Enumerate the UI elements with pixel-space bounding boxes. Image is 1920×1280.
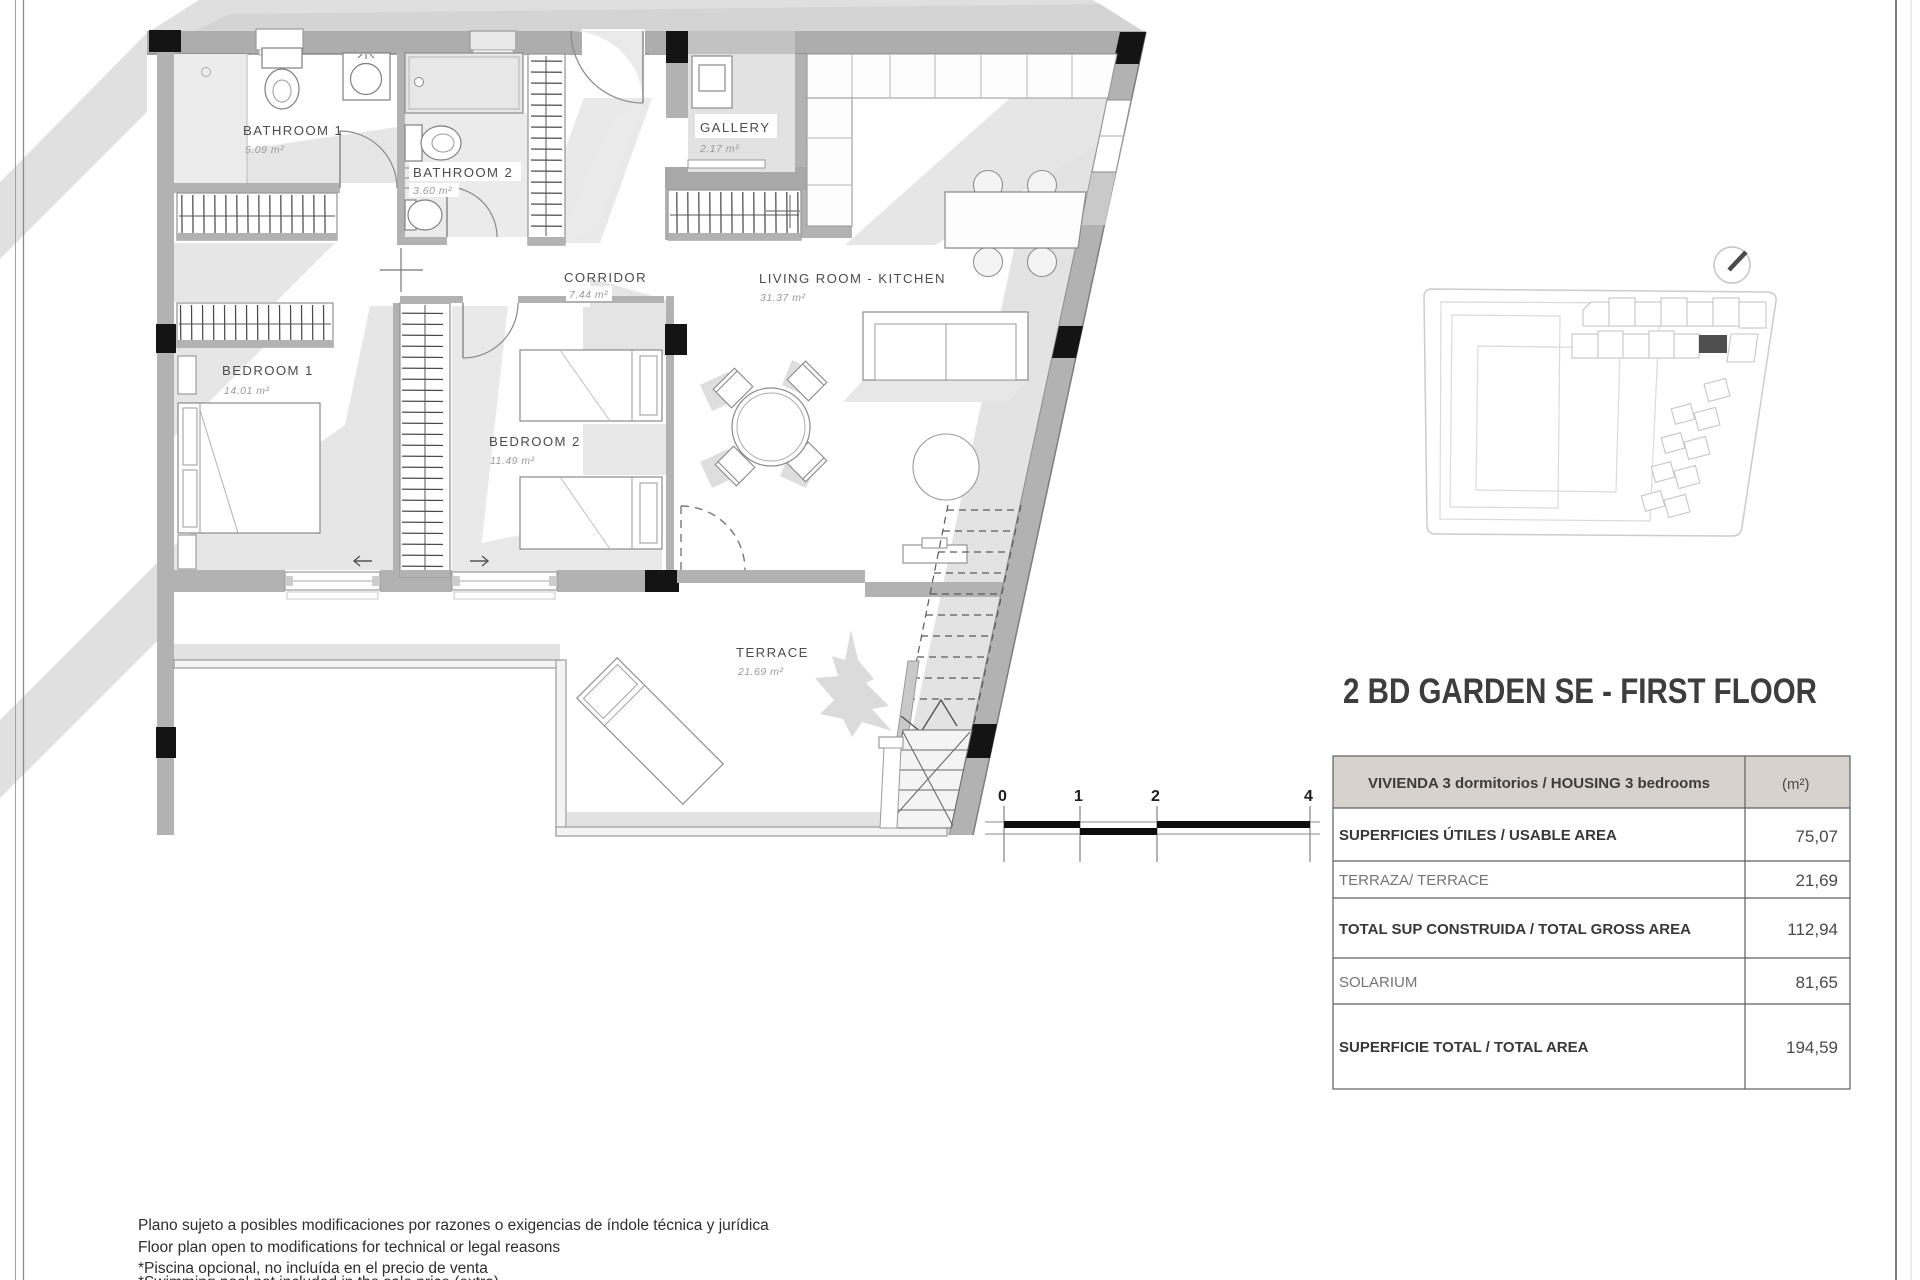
svg-text:5.09 m²: 5.09 m² [245,144,284,156]
svg-text:81,65: 81,65 [1795,973,1838,992]
svg-text:TOTAL SUP CONSTRUIDA / TOTAL G: TOTAL SUP CONSTRUIDA / TOTAL GROSS AREA [1339,921,1691,938]
svg-text:3.60 m²: 3.60 m² [413,185,452,197]
svg-text:CORRIDOR: CORRIDOR [564,270,647,285]
svg-text:BEDROOM 2: BEDROOM 2 [489,434,581,449]
svg-text:SUPERFICIES ÚTILES / USABLE AR: SUPERFICIES ÚTILES / USABLE AREA [1339,826,1617,844]
svg-text:SUPERFICIE TOTAL / TOTAL AREA: SUPERFICIE TOTAL / TOTAL AREA [1339,1039,1589,1056]
svg-text:31.37 m²: 31.37 m² [760,292,805,304]
svg-text:SOLARIUM: SOLARIUM [1339,974,1417,991]
svg-text:TERRACE: TERRACE [736,645,809,660]
svg-text:4: 4 [1304,788,1313,805]
svg-text:TERRAZA/ TERRACE: TERRAZA/ TERRACE [1339,872,1489,889]
svg-text:Plano sujeto a posibles modifi: Plano sujeto a posibles modificaciones p… [138,1217,769,1234]
svg-text:21.69 m²: 21.69 m² [737,666,783,678]
svg-text:Floor plan open to modificatio: Floor plan open to modifications for tec… [138,1239,560,1256]
svg-text:0: 0 [998,788,1007,805]
svg-text:14.01 m²: 14.01 m² [224,385,269,397]
svg-text:21,69: 21,69 [1795,871,1838,890]
svg-text:*Swimming pool not included in: *Swimming pool not included in the sale … [138,1274,499,1280]
svg-text:BATHROOM 1: BATHROOM 1 [243,123,343,138]
svg-text:75,07: 75,07 [1795,827,1838,846]
svg-text:194,59: 194,59 [1786,1038,1838,1057]
svg-text:BEDROOM 1: BEDROOM 1 [222,363,314,378]
svg-text:VIVIENDA 3 dormitorios / HOUSI: VIVIENDA 3 dormitorios / HOUSING 3 bedro… [1368,775,1710,792]
svg-text:11.49 m²: 11.49 m² [490,455,535,467]
svg-text:1: 1 [1074,788,1083,805]
svg-text:2: 2 [1151,788,1160,805]
svg-text:GALLERY: GALLERY [700,120,770,135]
svg-text:112,94: 112,94 [1787,920,1838,939]
svg-text:BATHROOM 2: BATHROOM 2 [413,165,513,180]
svg-text:2.17 m²: 2.17 m² [699,143,739,155]
svg-text:7.44 m²: 7.44 m² [569,289,608,301]
svg-text:(m²): (m²) [1782,776,1809,793]
svg-text:2 BD GARDEN SE - FIRST FLOOR: 2 BD GARDEN SE - FIRST FLOOR [1343,672,1817,711]
svg-text:LIVING ROOM - KITCHEN: LIVING ROOM - KITCHEN [759,271,946,286]
